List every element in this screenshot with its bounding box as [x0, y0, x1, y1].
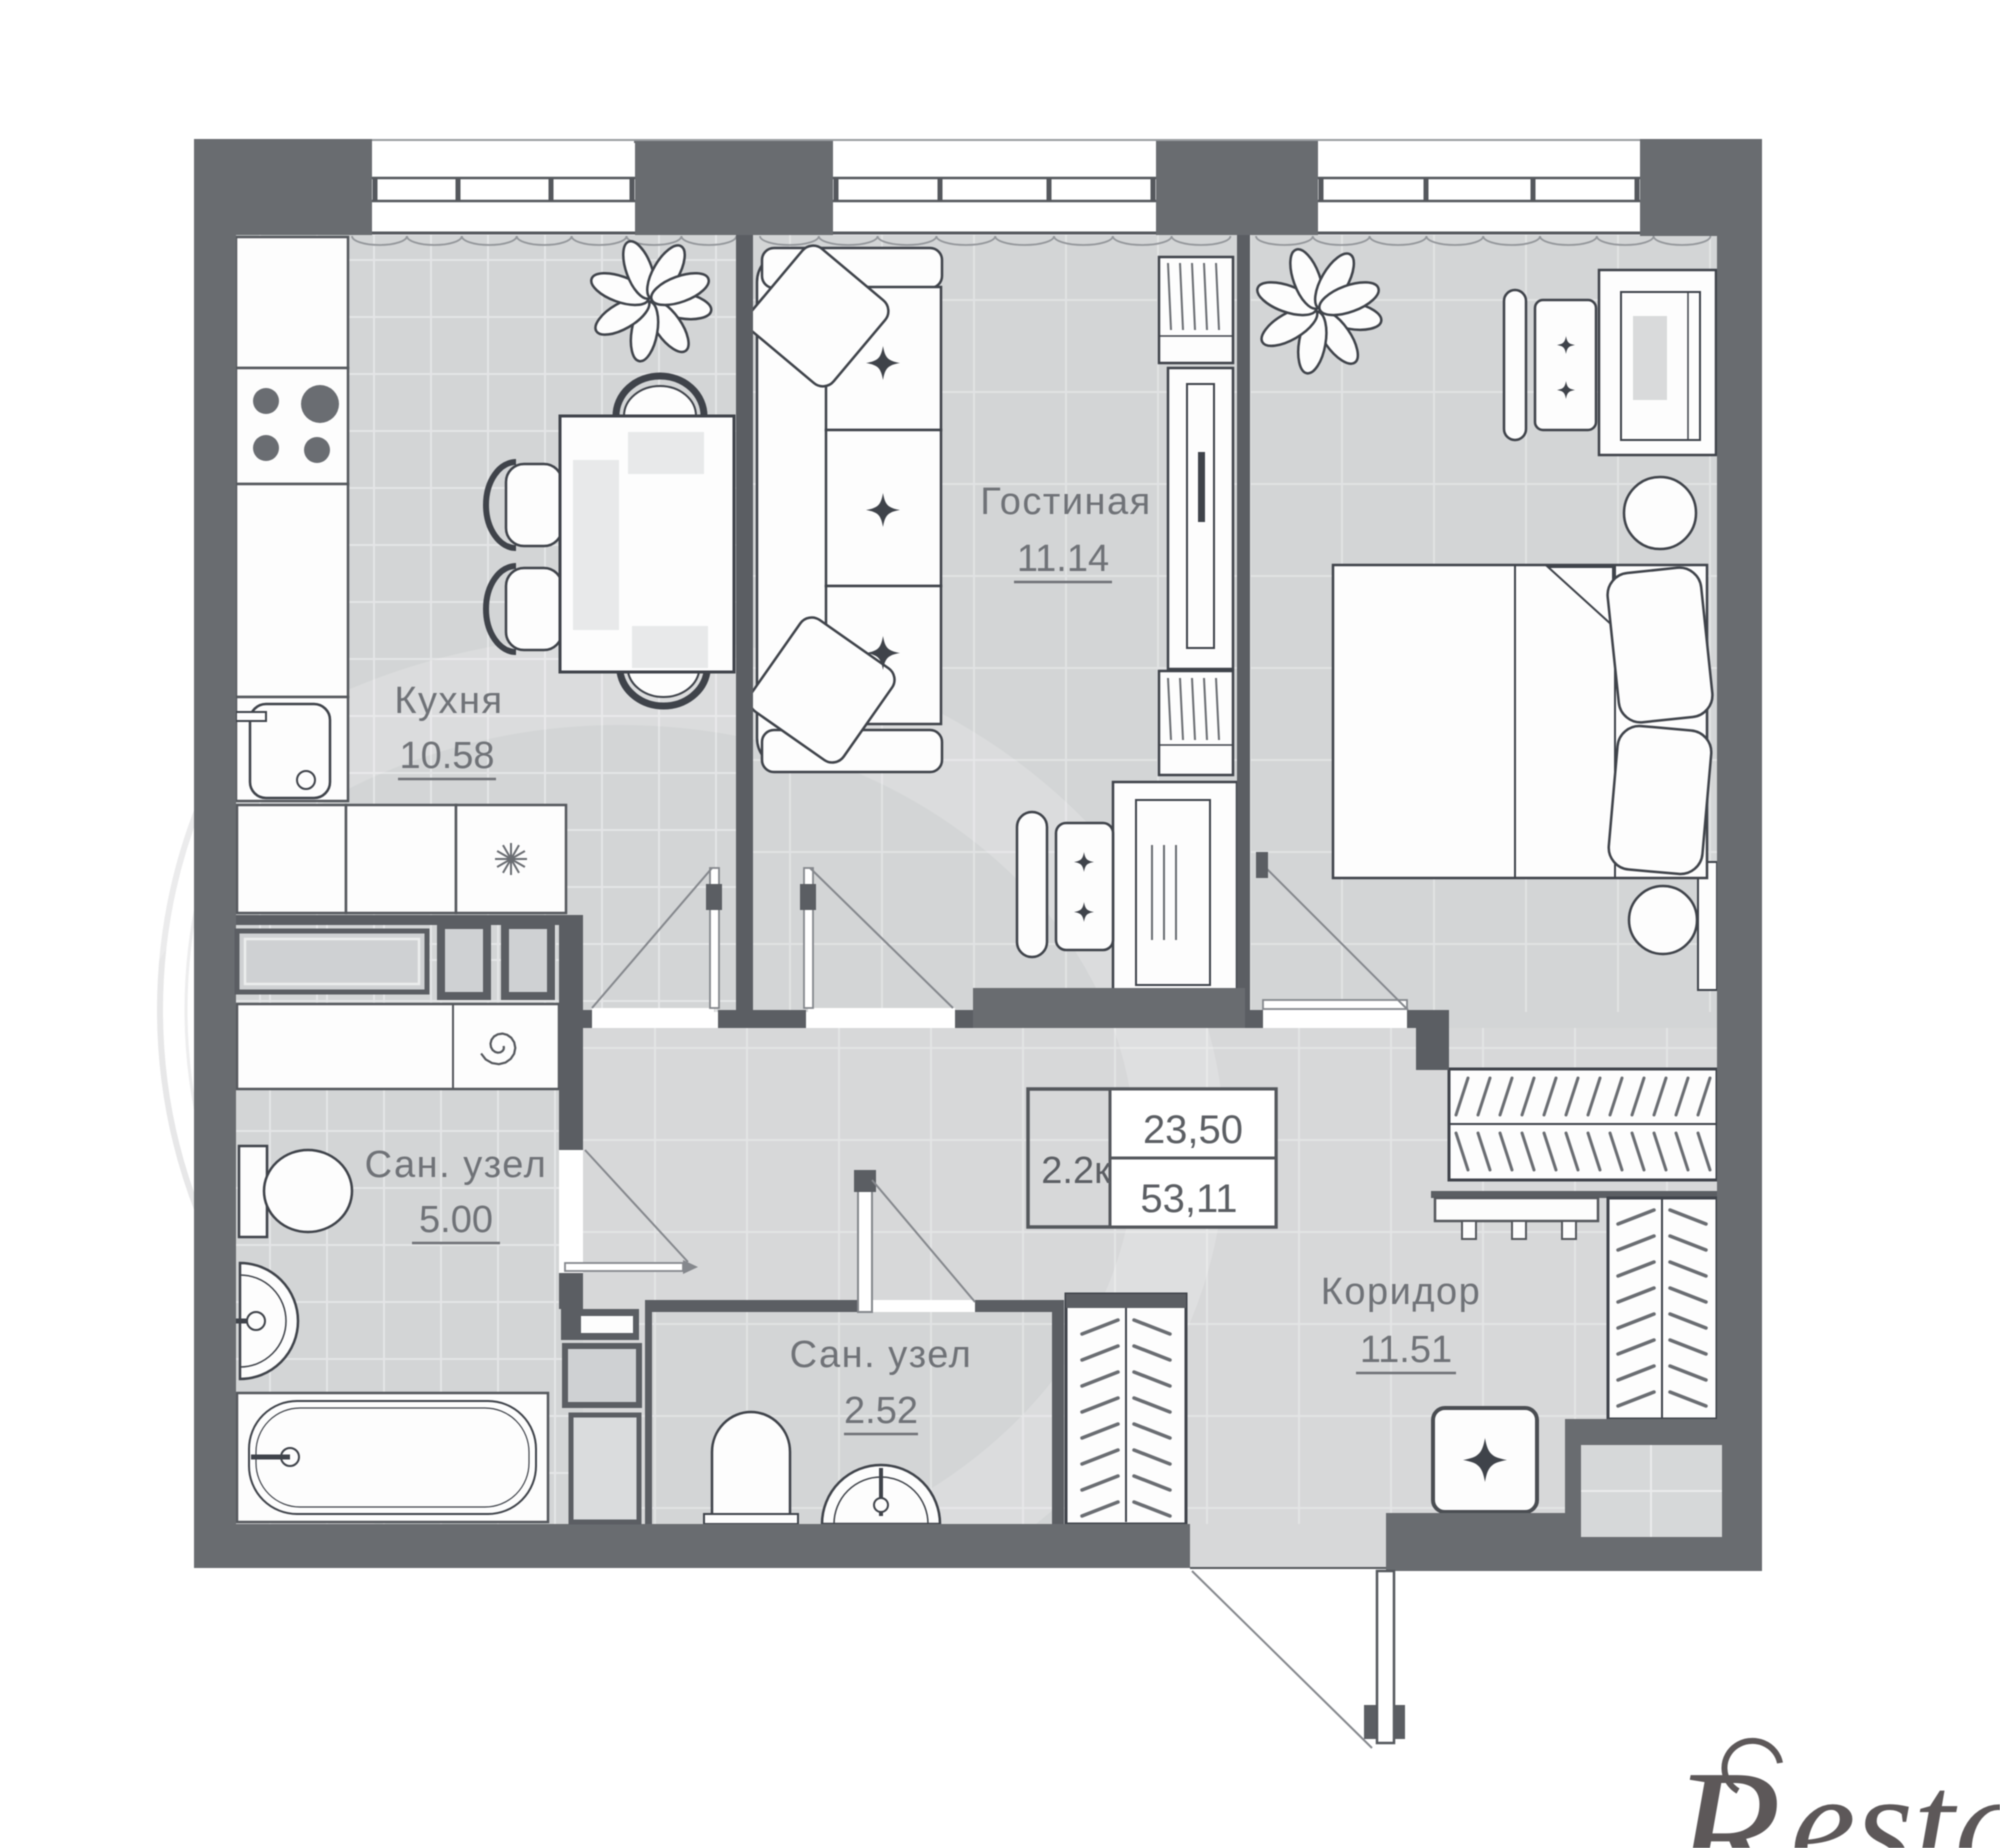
svg-text:5.00: 5.00: [419, 1199, 493, 1241]
svg-text:Сан. узел: Сан. узел: [790, 1334, 973, 1376]
svg-text:Гостиная: Гостиная: [980, 481, 1152, 523]
svg-text:R: R: [1671, 1733, 1782, 1848]
svg-text:53,11: 53,11: [1140, 1177, 1237, 1221]
svg-text:11.51: 11.51: [1360, 1329, 1452, 1371]
svg-text:10.58: 10.58: [399, 735, 494, 777]
svg-text:2.2к: 2.2к: [1041, 1150, 1111, 1192]
svg-text:2.52: 2.52: [844, 1390, 918, 1432]
svg-text:11.14: 11.14: [1017, 538, 1109, 580]
svg-text:Коридор: Коридор: [1321, 1271, 1482, 1313]
svg-text:Кухня: Кухня: [394, 680, 503, 722]
svg-text:estate: estate: [1790, 1743, 2000, 1848]
svg-text:23,50: 23,50: [1143, 1108, 1243, 1152]
svg-text:Сан. узел: Сан. узел: [365, 1144, 548, 1186]
